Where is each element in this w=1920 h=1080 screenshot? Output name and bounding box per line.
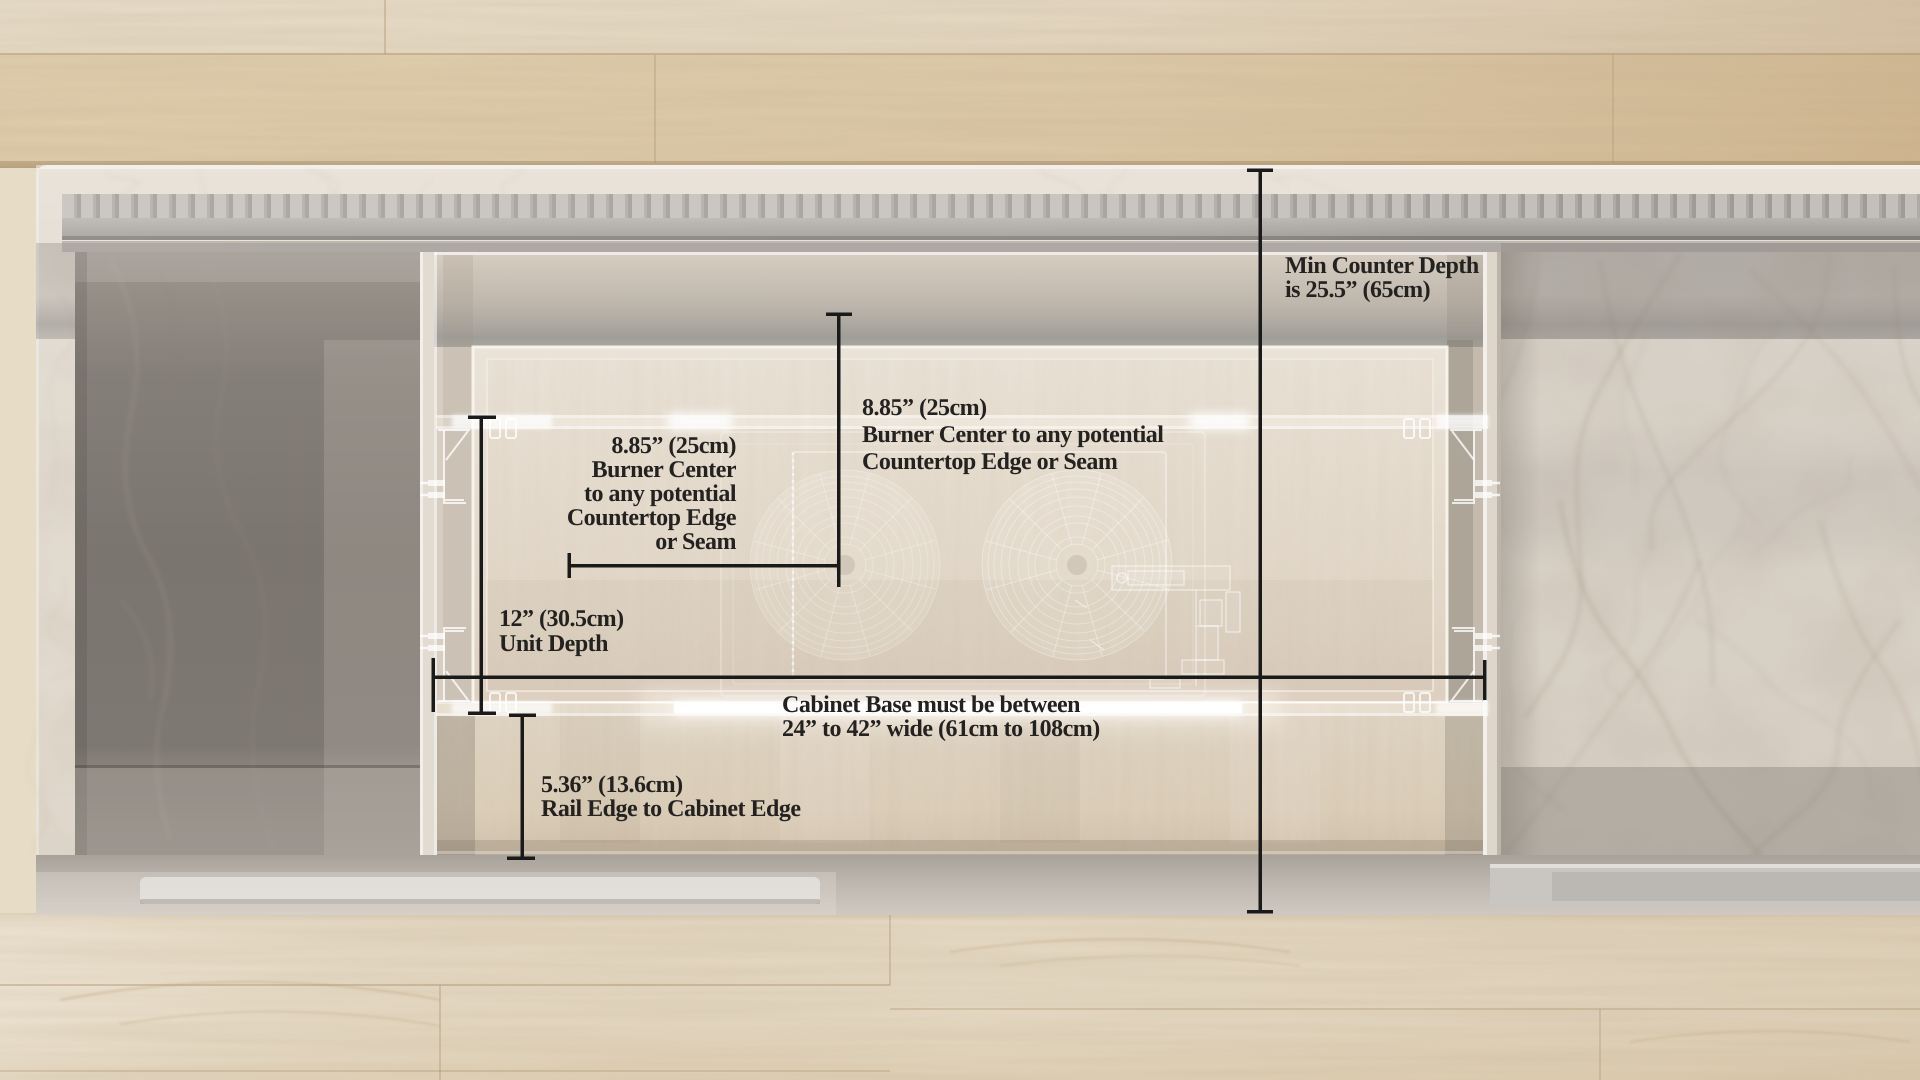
svg-text:12” (30.5cm): 12” (30.5cm) (499, 606, 624, 632)
svg-text:Countertop Edge or Seam: Countertop Edge or Seam (862, 449, 1118, 475)
svg-text:to any potential: to any potential (584, 481, 737, 507)
svg-text:Countertop Edge: Countertop Edge (567, 505, 737, 531)
svg-text:Rail Edge to Cabinet Edge: Rail Edge to Cabinet Edge (541, 796, 801, 822)
svg-text:or Seam: or Seam (655, 529, 736, 555)
svg-text:Burner Center to any potential: Burner Center to any potential (862, 422, 1164, 448)
svg-text:5.36” (13.6cm): 5.36” (13.6cm) (541, 772, 683, 798)
svg-text:Min Counter Depth: Min Counter Depth (1285, 253, 1479, 279)
svg-text:Unit Depth: Unit Depth (499, 631, 608, 657)
svg-text:8.85” (25cm): 8.85” (25cm) (862, 395, 987, 421)
svg-text:24” to 42” wide (61cm to 108cm: 24” to 42” wide (61cm to 108cm) (782, 716, 1100, 742)
svg-text:8.85” (25cm): 8.85” (25cm) (611, 433, 736, 459)
svg-text:is 25.5” (65cm): is 25.5” (65cm) (1285, 277, 1430, 303)
svg-text:Cabinet Base must be between: Cabinet Base must be between (782, 692, 1080, 718)
svg-text:Burner Center: Burner Center (592, 457, 737, 483)
